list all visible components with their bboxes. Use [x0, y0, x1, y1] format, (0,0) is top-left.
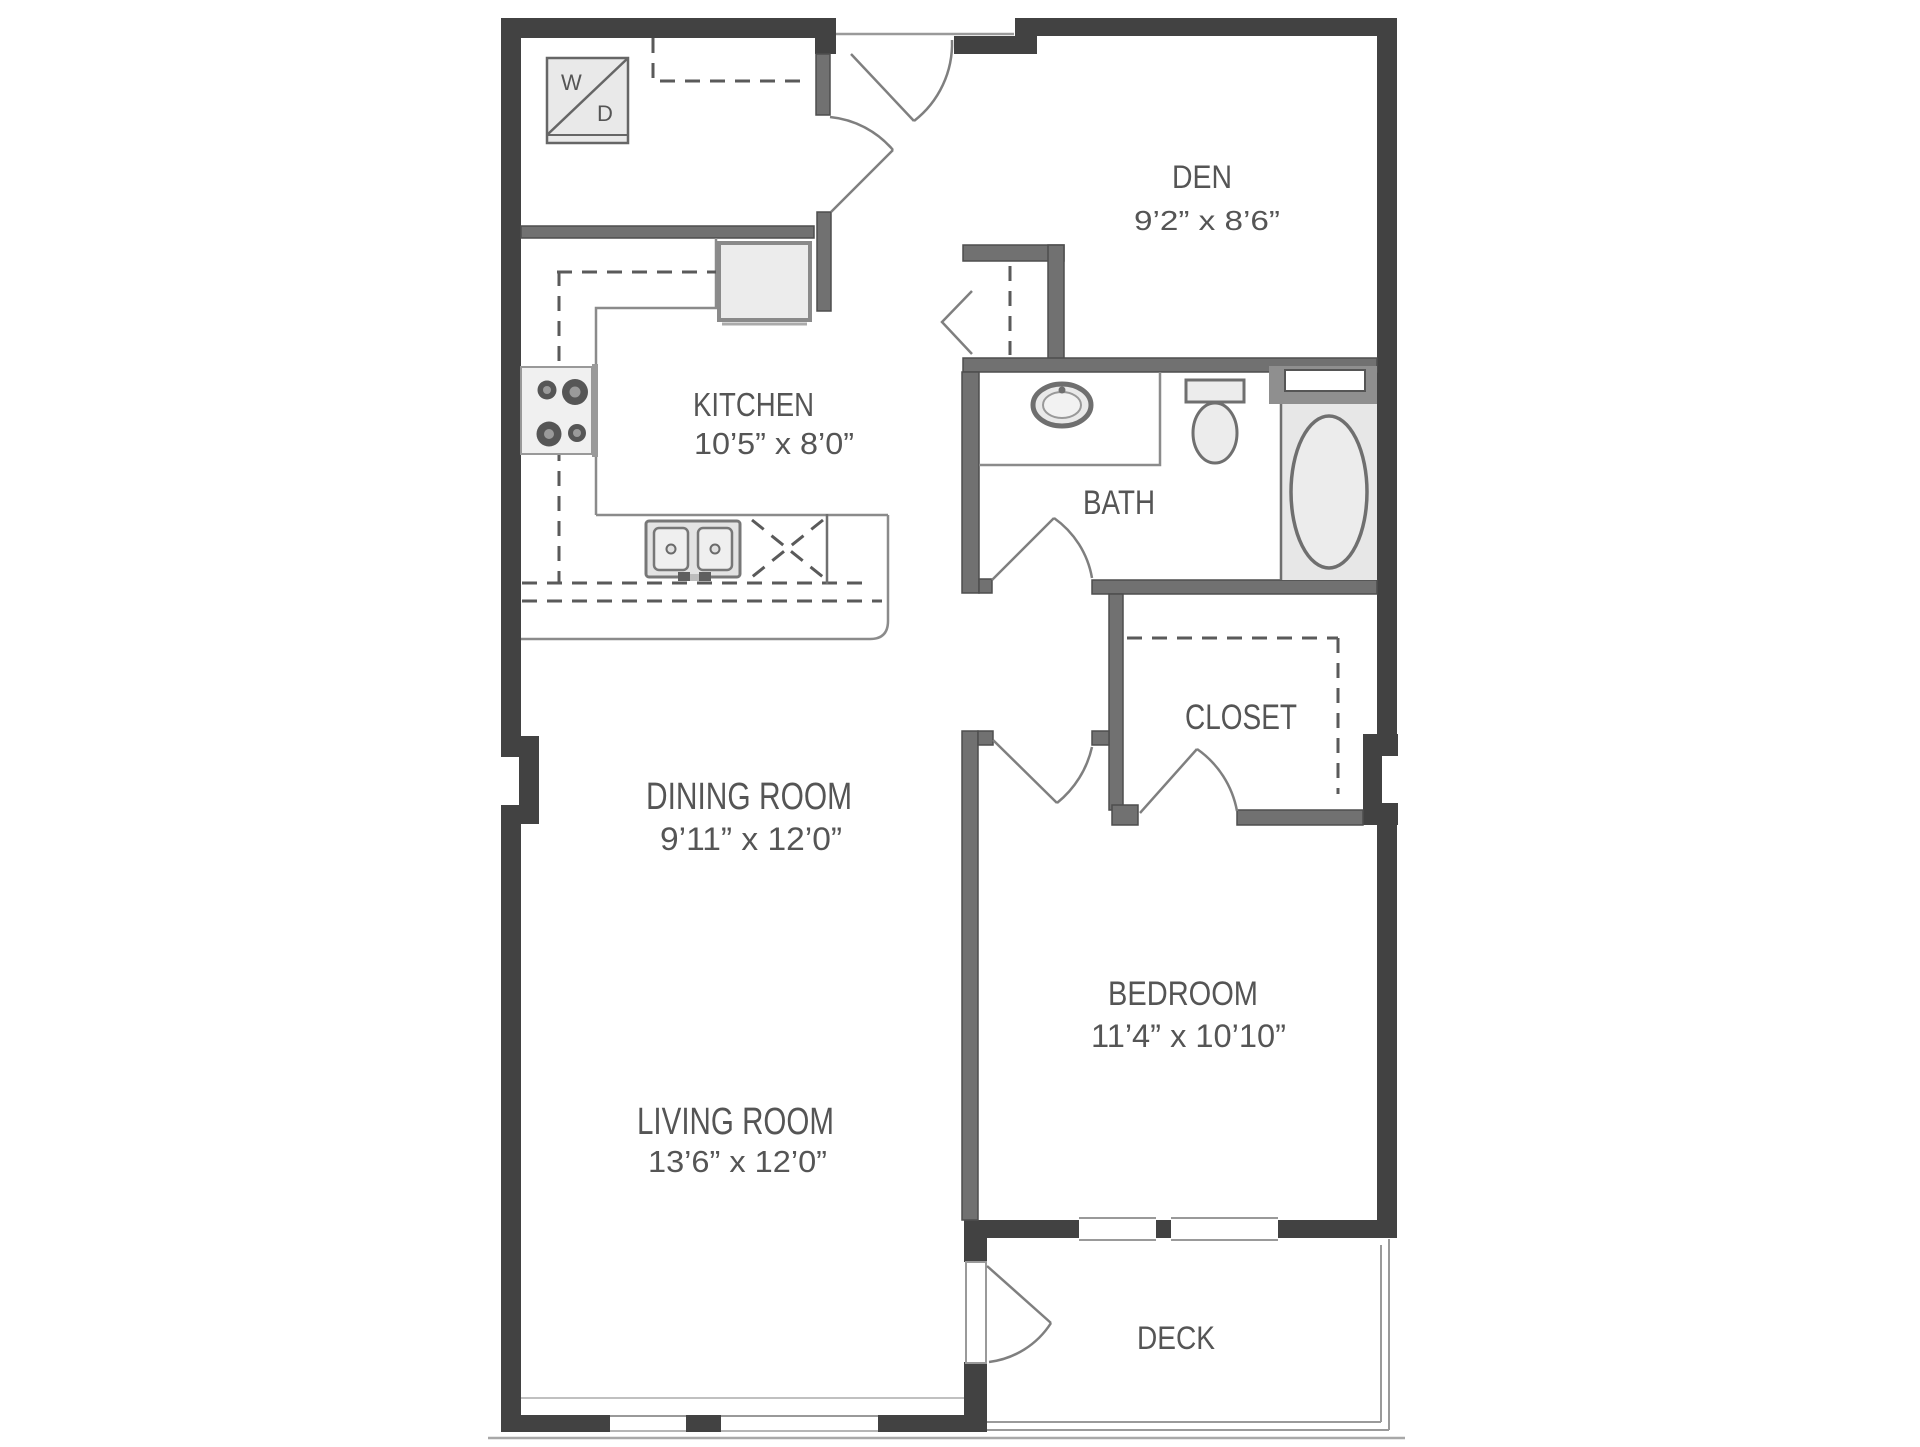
svg-text:LIVING ROOM: LIVING ROOM: [637, 1101, 834, 1143]
svg-text:DINING ROOM: DINING ROOM: [646, 776, 852, 818]
svg-text:W: W: [561, 70, 582, 95]
svg-text:KITCHEN: KITCHEN: [693, 386, 814, 423]
svg-text:9’11” x 12’0”: 9’11” x 12’0”: [660, 821, 842, 857]
svg-text:BATH: BATH: [1083, 484, 1155, 522]
svg-text:BEDROOM: BEDROOM: [1108, 975, 1258, 1013]
svg-text:10’5” x 8’0”: 10’5” x 8’0”: [694, 426, 854, 461]
svg-text:DEN: DEN: [1172, 159, 1232, 195]
svg-text:DECK: DECK: [1137, 1320, 1215, 1356]
svg-text:11’4” x 10’10”: 11’4” x 10’10”: [1091, 1018, 1286, 1054]
svg-text:9’2” x 8’6”: 9’2” x 8’6”: [1134, 205, 1280, 236]
svg-text:CLOSET: CLOSET: [1185, 698, 1297, 737]
svg-text:D: D: [597, 101, 613, 126]
svg-text:13’6” x 12’0”: 13’6” x 12’0”: [648, 1144, 827, 1179]
